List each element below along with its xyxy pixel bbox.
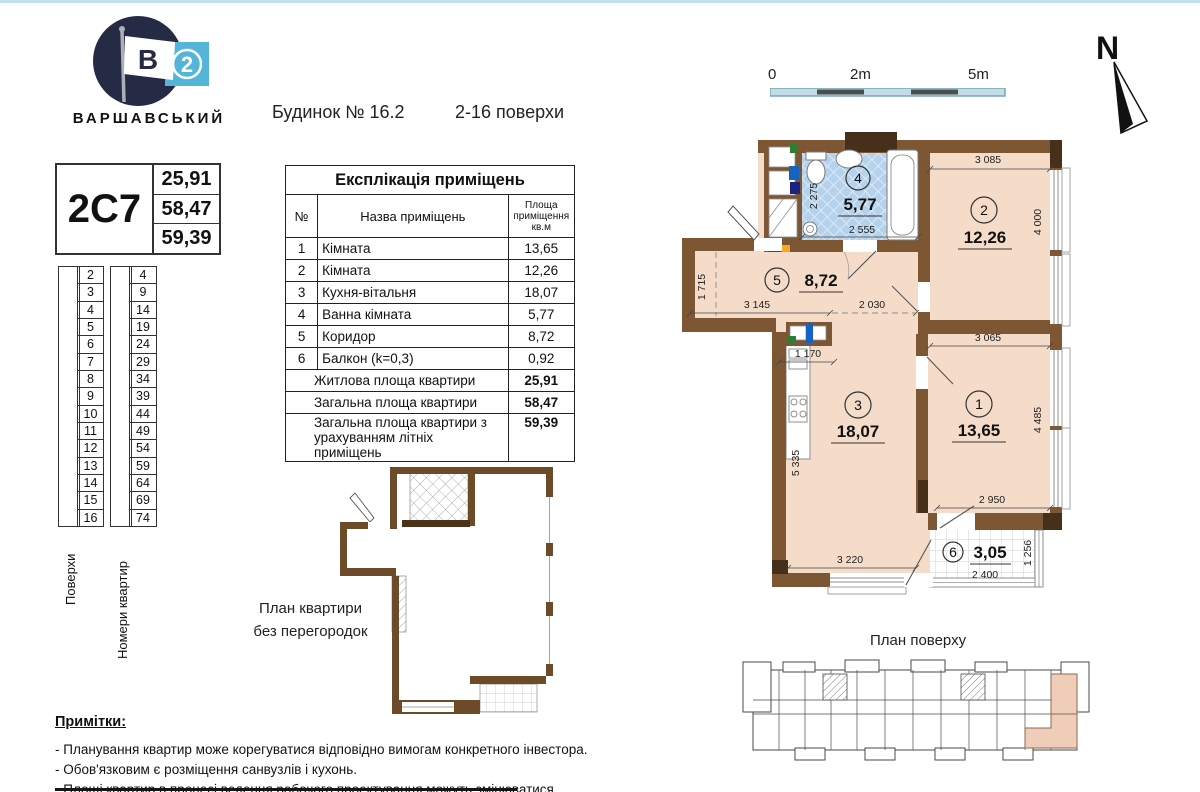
- unit-total-area-summer: 59,39: [154, 223, 219, 253]
- explication-row: 2Кімната12,26: [286, 260, 575, 282]
- scale-label-2m: 2m: [850, 66, 871, 83]
- svg-text:3 085: 3 085: [975, 154, 1001, 166]
- svg-text:2 950: 2 950: [979, 494, 1005, 506]
- floorplan-sheet: В 2 ВАРШАВСЬКИЙ Будинок № 16.2 2-16 пове…: [0, 0, 1200, 792]
- highlighted-unit-upper: [1051, 674, 1077, 714]
- sink-basin-icon: [836, 150, 862, 168]
- explication-row: 5Коридор8,72: [286, 326, 575, 348]
- svg-text:3 220: 3 220: [837, 554, 863, 566]
- note-item: - Планування квартир може корегуватися в…: [55, 740, 655, 760]
- flag-letter: В: [138, 44, 158, 75]
- svg-text:3: 3: [854, 397, 862, 413]
- bottom-border-line: [55, 788, 517, 791]
- svg-text:5,77: 5,77: [843, 195, 876, 214]
- floors-table: 2 3 4 5 6 7 8 9 10 11 12 13 14 15 16: [77, 266, 104, 527]
- outline-entrance-door: [350, 493, 374, 522]
- svg-text:1 715: 1 715: [696, 274, 708, 300]
- unit-code: 2С7: [57, 165, 154, 253]
- apartments-table-header: Номери квартир: [115, 561, 130, 659]
- riser-mark-navy: [790, 182, 800, 194]
- svg-text:2 275: 2 275: [808, 183, 820, 209]
- svg-text:1 170: 1 170: [795, 348, 821, 360]
- stair-core: [823, 674, 847, 700]
- svg-text:13,65: 13,65: [958, 421, 1001, 440]
- building-title: Будинок № 16.2: [272, 102, 405, 123]
- svg-text:1: 1: [975, 396, 983, 412]
- svg-text:4 485: 4 485: [1032, 407, 1044, 433]
- notes: Примітки: - Планування квартир може коре…: [55, 714, 655, 792]
- scale-label-5m: 5m: [968, 66, 989, 83]
- outline-plan-caption: План квартири без перегородок: [248, 597, 373, 643]
- svg-text:12,26: 12,26: [964, 228, 1007, 247]
- outline-plan: [330, 455, 560, 725]
- svg-text:3 065: 3 065: [975, 332, 1001, 344]
- explication-summary-row: Загальна площа квартири58,47: [286, 392, 575, 414]
- building-floor-plan: [735, 652, 1095, 770]
- floors-range: 2-16 поверхи: [455, 102, 564, 123]
- svg-text:6: 6: [949, 544, 957, 560]
- svg-text:1 256: 1 256: [1022, 540, 1034, 566]
- top-border-strip: [0, 0, 1200, 3]
- flag-pole: [122, 30, 124, 102]
- explication-row: 6Балкон (k=0,3)0,92: [286, 348, 575, 370]
- explication-row: 3Кухня-вітальня18,07: [286, 282, 575, 304]
- svg-text:2 555: 2 555: [849, 224, 875, 236]
- svg-text:4: 4: [854, 170, 862, 186]
- brand-name: ВАРШАВСЬКИЙ: [40, 110, 258, 127]
- explication-title: Експлікація приміщень: [286, 166, 575, 195]
- svg-text:8,72: 8,72: [804, 271, 837, 290]
- svg-text:2 400: 2 400: [972, 569, 998, 581]
- explication-summary-row: Житлова площа квартири25,91: [286, 370, 575, 392]
- brand-logo: В 2: [78, 14, 218, 114]
- unit-living-area: 25,91: [154, 165, 219, 194]
- svg-text:2: 2: [980, 202, 988, 218]
- apartments-table: 4 9 14 19 24 29 34 39 44 49 54 59 64 69 …: [129, 266, 157, 527]
- svg-text:2 030: 2 030: [859, 299, 885, 311]
- explication-row: 4Ванна кімната5,77: [286, 304, 575, 326]
- svg-text:3 145: 3 145: [744, 299, 770, 311]
- scale-bar: [770, 88, 1010, 98]
- stair-core: [961, 674, 985, 700]
- apartment-plan: 3 085 3 065 2 950 2 400 3 220 3 145 2 03…: [675, 128, 1190, 620]
- riser-mark-blue: [789, 166, 799, 180]
- note-item: - Обов'язковим є розміщення санвузлів і …: [55, 760, 655, 780]
- svg-text:5: 5: [773, 272, 781, 288]
- svg-text:3,05: 3,05: [973, 543, 1006, 562]
- floor-plan-caption: План поверху: [870, 632, 966, 649]
- scale-label-0: 0: [768, 66, 776, 83]
- explication-row: 1Кімната13,65: [286, 238, 575, 260]
- riser-mark-yellow: [782, 245, 790, 252]
- svg-text:4 000: 4 000: [1032, 209, 1044, 235]
- riser-mark-green: [790, 144, 798, 153]
- explication-table: Експлікація приміщень № Назва приміщень …: [285, 165, 575, 462]
- notes-title: Примітки:: [55, 714, 655, 730]
- entrance-door: [728, 206, 759, 240]
- svg-text:18,07: 18,07: [837, 422, 880, 441]
- floors-table-header: Поверхи: [63, 554, 78, 605]
- svg-text:5 335: 5 335: [790, 450, 802, 476]
- toilet-icon: [806, 152, 826, 160]
- unit-card: 2С7 25,91 58,47 59,39: [55, 163, 221, 255]
- unit-total-area: 58,47: [154, 194, 219, 224]
- flag-number: 2: [181, 52, 193, 77]
- north-arrow-icon: [1100, 58, 1160, 138]
